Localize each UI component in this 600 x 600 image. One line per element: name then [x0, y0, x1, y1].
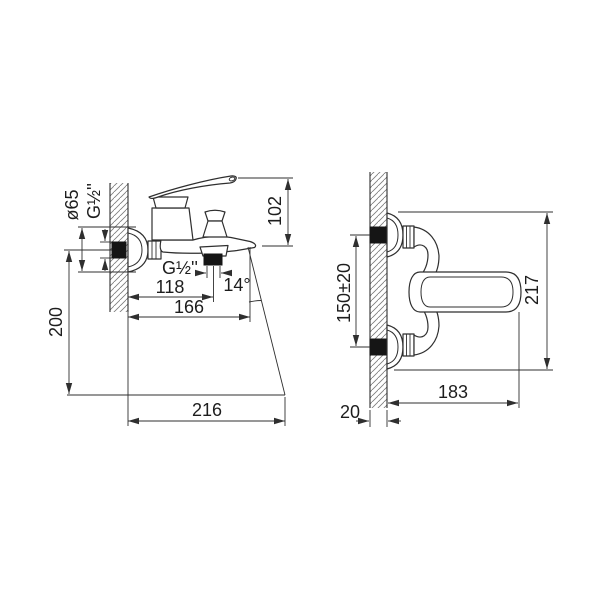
lever-handle-side	[149, 176, 236, 198]
dim-label-flange-diameter: ø65	[62, 189, 82, 220]
technical-drawing-page: ø65 G½'' 102 G½'' 118	[0, 0, 600, 600]
faucet-dimension-drawing: ø65 G½'' 102 G½'' 118	[0, 0, 600, 600]
angle-arc	[249, 301, 262, 303]
dim-label-wall-to-spout-tip: 166	[174, 297, 204, 317]
body-cap-side	[153, 197, 188, 208]
dim-label-wall-inlet-thread: G½''	[84, 183, 104, 219]
water-stream-line	[248, 247, 285, 395]
dim-label-inlet-to-rim: 200	[46, 307, 66, 337]
bottom-nut-front	[403, 334, 414, 356]
dim-spout-angle: 14°	[223, 247, 261, 322]
wall-inlet-thread-block	[112, 242, 126, 258]
top-flange-front	[387, 213, 403, 257]
dim-label-connection-spacing: 150±20	[334, 263, 354, 323]
mixer-body-side	[152, 208, 193, 240]
dim-label-shower-outlet-thread: G½''	[162, 258, 198, 278]
top-inlet-thread-block	[370, 227, 387, 243]
flange-side	[128, 228, 148, 272]
dim-label-body-height: 102	[265, 196, 285, 226]
dim-label-spout-angle: 14°	[223, 275, 250, 295]
bottom-flange-front	[387, 325, 403, 369]
dim-spout-reach: 216	[128, 312, 285, 426]
connection-nut-side	[148, 241, 161, 259]
dim-label-wall-thickness: 20	[340, 402, 360, 422]
front-view: 150±20 217 183 20	[334, 172, 553, 427]
side-view: ø65 G½'' 102 G½'' 118	[46, 176, 293, 426]
shower-outlet-thread-block	[204, 254, 222, 265]
dim-connection-spacing: 150±20	[334, 235, 370, 347]
dim-label-overall-width: 183	[438, 382, 468, 402]
top-nut-front	[403, 226, 414, 248]
dim-wall-to-spout-tip: 166	[128, 297, 250, 317]
diverter-knob-cap	[205, 210, 225, 221]
dim-overall-width: 183	[388, 312, 519, 408]
dim-label-spout-reach: 216	[192, 400, 222, 420]
dim-label-overall-height: 217	[522, 275, 542, 305]
dim-body-height: 102	[238, 178, 293, 246]
bottom-inlet-thread-block	[370, 339, 387, 355]
dim-label-wall-to-outlet: 118	[156, 277, 185, 297]
diverter-knob-base	[203, 221, 227, 237]
body-upper-arm-front	[414, 227, 439, 278]
wall-hatch-front	[370, 172, 387, 408]
